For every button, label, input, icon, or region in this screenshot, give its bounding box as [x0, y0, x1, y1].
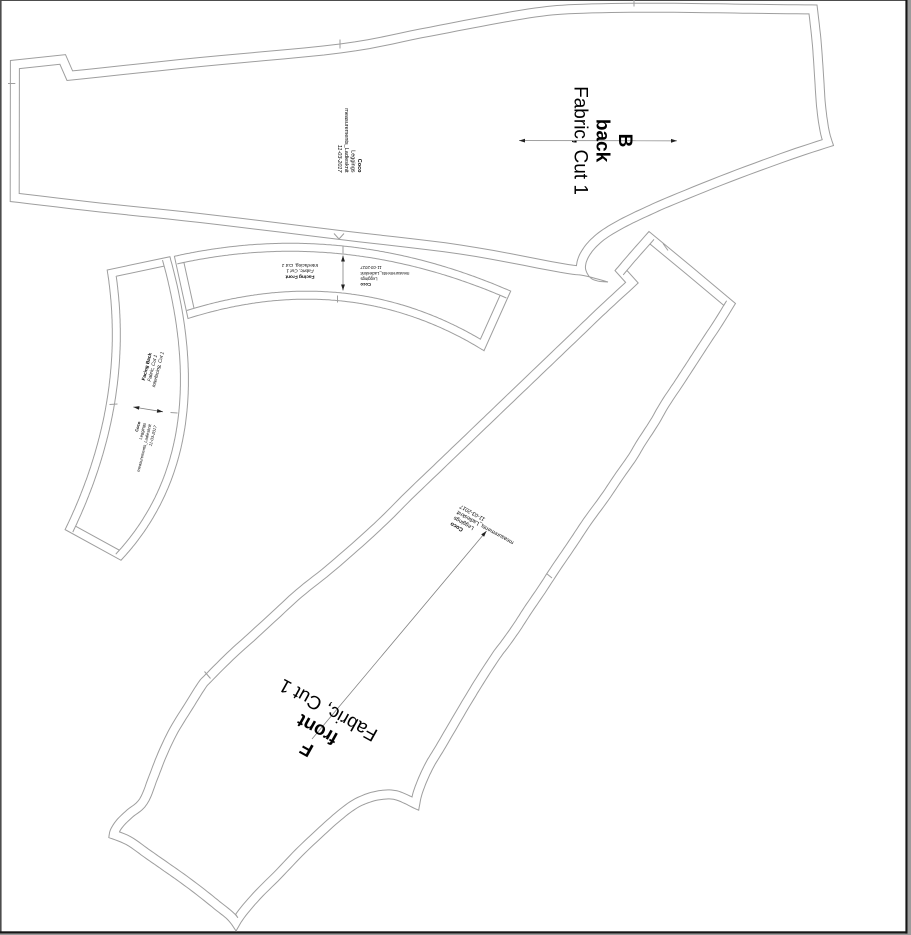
svg-text:Leggings: Leggings	[361, 276, 378, 281]
svg-text:B: B	[614, 134, 635, 148]
svg-text:Coco: Coco	[356, 159, 362, 173]
svg-text:11-03-2017: 11-03-2017	[336, 145, 342, 174]
svg-text:11-03-2017: 11-03-2017	[360, 265, 382, 270]
svg-text:Fabric, Cut 1: Fabric, Cut 1	[569, 86, 590, 195]
svg-text:Facing Front: Facing Front	[285, 274, 314, 280]
svg-text:measurements_Ladiesknit: measurements_Ladiesknit	[360, 271, 410, 276]
svg-text:Interfacing, Cut 1: Interfacing, Cut 1	[281, 262, 318, 268]
svg-text:Coco: Coco	[360, 282, 371, 287]
svg-text:measurements_Ladiesknit: measurements_Ladiesknit	[343, 108, 349, 173]
svg-text:Fabric, Cut 1: Fabric, Cut 1	[286, 268, 314, 274]
svg-text:Leggings: Leggings	[349, 150, 355, 173]
svg-text:back: back	[592, 119, 613, 163]
